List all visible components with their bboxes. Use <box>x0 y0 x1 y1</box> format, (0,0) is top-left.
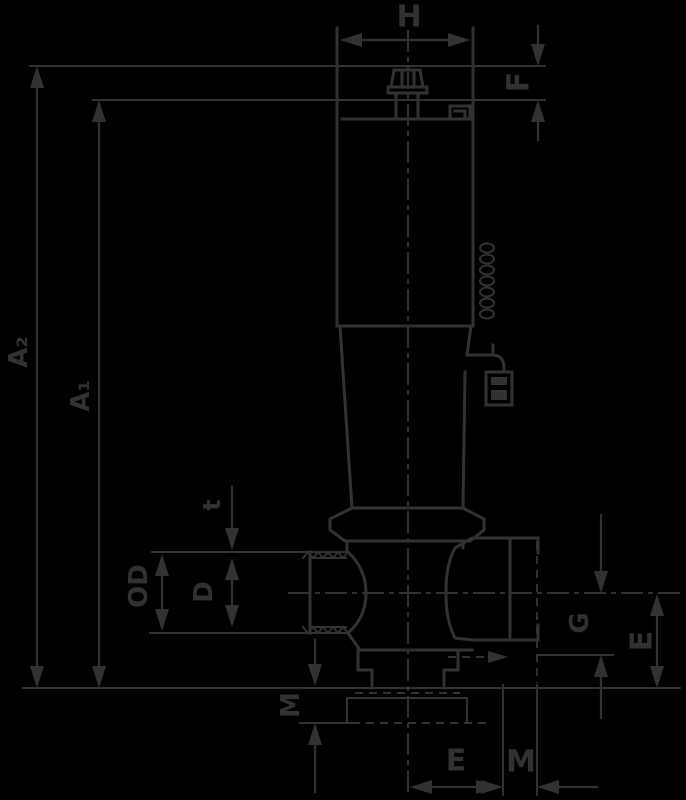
knurl-detail <box>480 244 494 319</box>
lever-detail-fill <box>491 377 507 400</box>
d-arrow-up <box>225 558 239 580</box>
drawing-canvas: H F A₂ A₁ t OD D M G E E M <box>0 0 686 800</box>
a2-arrow-up <box>30 66 44 88</box>
f-arrow-up <box>531 100 545 122</box>
g-arrow-up <box>594 655 608 677</box>
m-left-arrow-down <box>308 664 322 686</box>
label-G: G <box>565 612 595 633</box>
a1-arrow-down <box>92 666 106 688</box>
knurl-ring <box>480 255 494 264</box>
od-arrow-down <box>155 609 169 631</box>
dim-shafts <box>37 26 657 792</box>
label-E-right: E <box>625 631 660 652</box>
m-left-arrow-up <box>308 723 322 745</box>
e-right-arrow-down <box>650 666 664 688</box>
m-bottom-arrow-left <box>537 780 559 794</box>
label-D: D <box>189 581 219 603</box>
e-bottom-arrow-left <box>410 780 432 794</box>
m-bottom-arrow-right <box>481 780 503 794</box>
label-M-bottom: M <box>506 745 536 780</box>
dimension-lines <box>37 26 657 792</box>
shoulder-block <box>450 106 470 119</box>
a2-arrow-down <box>30 666 44 688</box>
d-arrow-down <box>225 605 239 627</box>
label-A2: A₂ <box>4 336 34 368</box>
h-arrow-left <box>340 33 362 47</box>
od-arrow-up <box>155 554 169 576</box>
label-H: H <box>396 0 421 35</box>
bore-leader-arrow <box>488 651 508 663</box>
label-OD: OD <box>124 564 154 608</box>
knurl-ring <box>480 288 494 297</box>
knurl-ring <box>480 310 494 319</box>
e-right-arrow-up <box>650 594 664 616</box>
right-port <box>446 538 510 640</box>
body-taper <box>340 326 471 508</box>
h-arrow-right <box>448 33 470 47</box>
f-arrow-down <box>531 44 545 66</box>
knurl-ring <box>480 266 494 275</box>
right-port-pilot-step <box>510 538 538 640</box>
a1-arrow-up <box>92 100 106 122</box>
label-A1: A₁ <box>66 380 96 412</box>
extension-lines <box>23 66 680 795</box>
label-M-left: M <box>276 692 306 718</box>
knurl-ring <box>480 244 494 253</box>
knurl-ring <box>480 299 494 308</box>
valve-outline <box>303 28 538 688</box>
knurl-ring <box>480 277 494 286</box>
bell-connectors <box>347 541 463 552</box>
label-E-bottom: E <box>446 744 467 779</box>
g-arrow-down <box>594 571 608 593</box>
label-t: t <box>198 499 226 510</box>
t-arrow-down <box>225 528 239 550</box>
valve-dimension-drawing: H F A₂ A₁ t OD D M G E E M <box>0 0 686 800</box>
label-F: F <box>502 72 537 93</box>
